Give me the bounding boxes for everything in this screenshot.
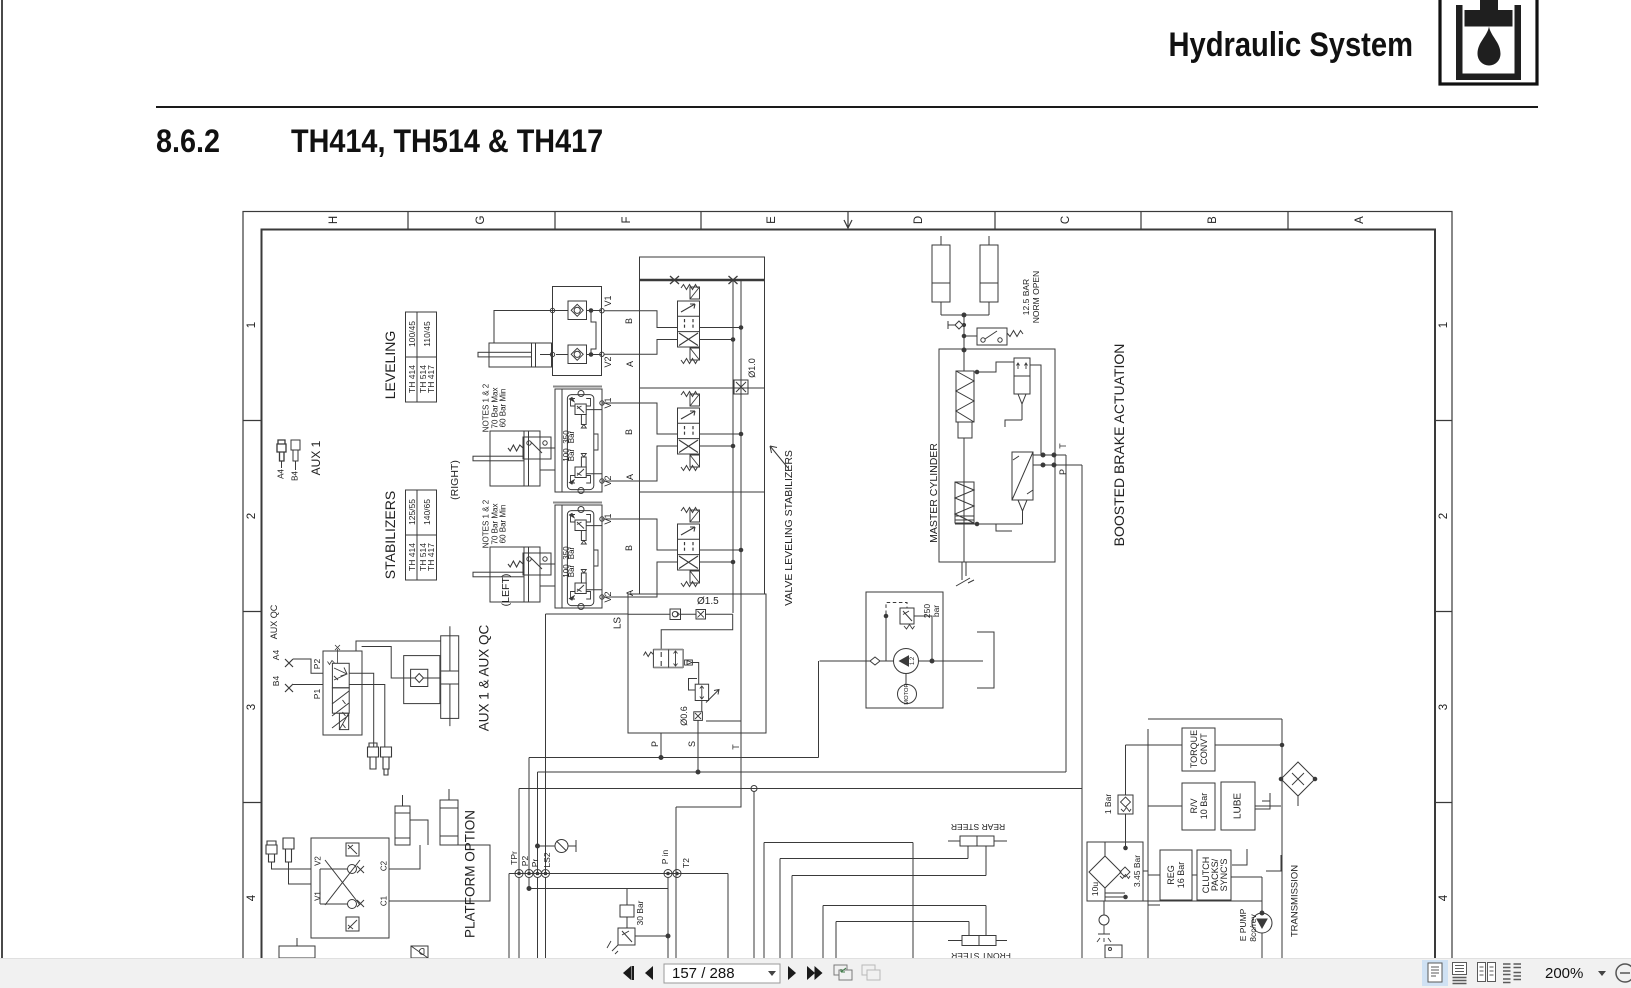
svg-text:Bar: Bar [567, 430, 576, 443]
svg-text:REAR STEER: REAR STEER [951, 822, 1005, 832]
svg-text:MOTOR: MOTOR [904, 683, 910, 704]
svg-text:B4: B4 [291, 471, 300, 481]
svg-text:REG: REG [1166, 865, 1176, 885]
svg-text:LS: LS [613, 617, 624, 630]
svg-text:200%: 200% [1545, 965, 1583, 982]
svg-text:16 Bar: 16 Bar [1176, 862, 1186, 889]
svg-text:G: G [475, 215, 487, 224]
svg-text:Bar: Bar [567, 546, 576, 559]
svg-text:2: 2 [1438, 513, 1450, 519]
svg-text:TH 414: TH 414 [407, 543, 417, 571]
svg-text:PLATFORM OPTION: PLATFORM OPTION [463, 810, 478, 938]
svg-text:SYNC'S: SYNC'S [1219, 859, 1229, 892]
svg-text:VALVE LEVELING STABILIZERS: VALVE LEVELING STABILIZERS [783, 450, 795, 606]
svg-text:V1: V1 [314, 891, 323, 901]
svg-text:1.2: 1.2 [910, 656, 916, 665]
svg-text:R/V: R/V [1189, 798, 1199, 813]
svg-text:P: P [1058, 469, 1068, 475]
svg-text:3: 3 [1438, 704, 1450, 710]
svg-text:P in: P in [660, 849, 670, 864]
svg-text:AUX 1: AUX 1 [309, 440, 323, 475]
svg-text:CONVT: CONVT [1199, 733, 1209, 765]
svg-text:8cc/rev: 8cc/rev [1248, 914, 1258, 942]
svg-text:1: 1 [1438, 322, 1450, 328]
svg-text:A: A [625, 590, 635, 596]
svg-text:LUBE: LUBE [1233, 793, 1244, 819]
svg-text:Ø1.5: Ø1.5 [697, 596, 719, 607]
svg-text:E: E [766, 216, 778, 224]
svg-text:A: A [625, 474, 635, 480]
svg-text:1: 1 [246, 322, 258, 328]
svg-text:T2: T2 [681, 858, 691, 868]
svg-text:100/45: 100/45 [407, 321, 417, 347]
svg-text:T: T [1058, 443, 1068, 449]
svg-text:TPr: TPr [509, 851, 519, 865]
svg-text:110/45: 110/45 [422, 321, 432, 347]
svg-text:E PUMP: E PUMP [1238, 908, 1248, 941]
svg-text:4: 4 [1438, 894, 1450, 901]
svg-text:TORQUE: TORQUE [1189, 730, 1199, 768]
svg-text:A4: A4 [271, 650, 281, 661]
svg-text:P2: P2 [312, 659, 322, 670]
svg-text:FRONT STEER: FRONT STEER [951, 951, 1011, 958]
svg-text:4: 4 [246, 894, 258, 901]
svg-text:(LEFT): (LEFT) [500, 574, 512, 607]
svg-text:2: 2 [246, 513, 258, 519]
svg-text:TH 417: TH 417 [426, 365, 436, 393]
svg-text:bar: bar [931, 605, 941, 617]
svg-text:V2: V2 [314, 856, 323, 866]
svg-text:1 Bar: 1 Bar [1103, 794, 1113, 814]
svg-text:AUX QC: AUX QC [269, 604, 279, 639]
svg-text:TH 414: TH 414 [407, 365, 417, 393]
svg-text:S: S [687, 741, 697, 747]
svg-text:Pr: Pr [530, 859, 540, 868]
svg-text:Ø1.0: Ø1.0 [747, 358, 757, 378]
svg-text:A: A [1354, 216, 1366, 224]
svg-text:B: B [624, 545, 634, 551]
svg-text:D: D [913, 216, 925, 224]
svg-text:125/55: 125/55 [407, 499, 417, 525]
svg-text:A: A [625, 361, 635, 367]
svg-text:STABILIZERS: STABILIZERS [382, 491, 398, 579]
svg-text:NOTES 1 & 2: NOTES 1 & 2 [482, 499, 491, 548]
svg-text:P1: P1 [312, 689, 322, 700]
svg-text:10u: 10u [1090, 882, 1100, 896]
svg-text:B4: B4 [271, 676, 281, 687]
svg-text:60 Bar Min: 60 Bar Min [499, 389, 508, 428]
svg-text:C2: C2 [380, 860, 389, 871]
svg-text:B: B [624, 429, 634, 435]
svg-text:C1: C1 [380, 895, 389, 906]
svg-text:B: B [1207, 216, 1219, 224]
svg-text:157 / 288: 157 / 288 [672, 965, 735, 982]
svg-text:12.5 BAR: 12.5 BAR [1021, 279, 1031, 315]
svg-text:3.45 Bar: 3.45 Bar [1132, 855, 1142, 887]
svg-text:V2: V2 [603, 356, 613, 367]
svg-text:TH 417: TH 417 [426, 543, 436, 571]
svg-text:T: T [731, 744, 741, 750]
svg-text:Bar: Bar [567, 564, 576, 577]
svg-text:140/65: 140/65 [422, 499, 432, 525]
svg-text:10 Bar: 10 Bar [1199, 793, 1209, 820]
svg-text:NOTES 1 & 2: NOTES 1 & 2 [482, 383, 491, 432]
svg-text:60 Bar Min: 60 Bar Min [499, 505, 508, 544]
svg-text:TRANSMISSION: TRANSMISSION [1290, 865, 1301, 937]
svg-text:(RIGHT): (RIGHT) [449, 460, 461, 500]
svg-text:Ø0.6: Ø0.6 [679, 706, 689, 726]
svg-text:3: 3 [246, 704, 258, 710]
svg-text:AUX 1 & AUX QC: AUX 1 & AUX QC [477, 624, 492, 731]
svg-text:BOOSTED BRAKE ACTUATION: BOOSTED BRAKE ACTUATION [1111, 344, 1127, 547]
svg-text:MASTER CYLINDER: MASTER CYLINDER [928, 443, 940, 543]
svg-text:LEVELING: LEVELING [382, 331, 398, 399]
svg-text:NORM OPEN: NORM OPEN [1031, 271, 1041, 323]
svg-text:F: F [621, 216, 633, 223]
svg-text:LS2: LS2 [542, 852, 552, 867]
svg-text:A4: A4 [277, 469, 286, 479]
svg-text:P2: P2 [520, 856, 530, 867]
svg-text:V1: V1 [603, 295, 613, 306]
svg-text:30 Bar: 30 Bar [635, 900, 645, 925]
svg-text:P: P [650, 741, 660, 747]
svg-text:B: B [624, 318, 634, 324]
svg-text:H: H [328, 216, 340, 224]
svg-text:C: C [1060, 216, 1072, 224]
svg-text:Bar: Bar [567, 448, 576, 461]
